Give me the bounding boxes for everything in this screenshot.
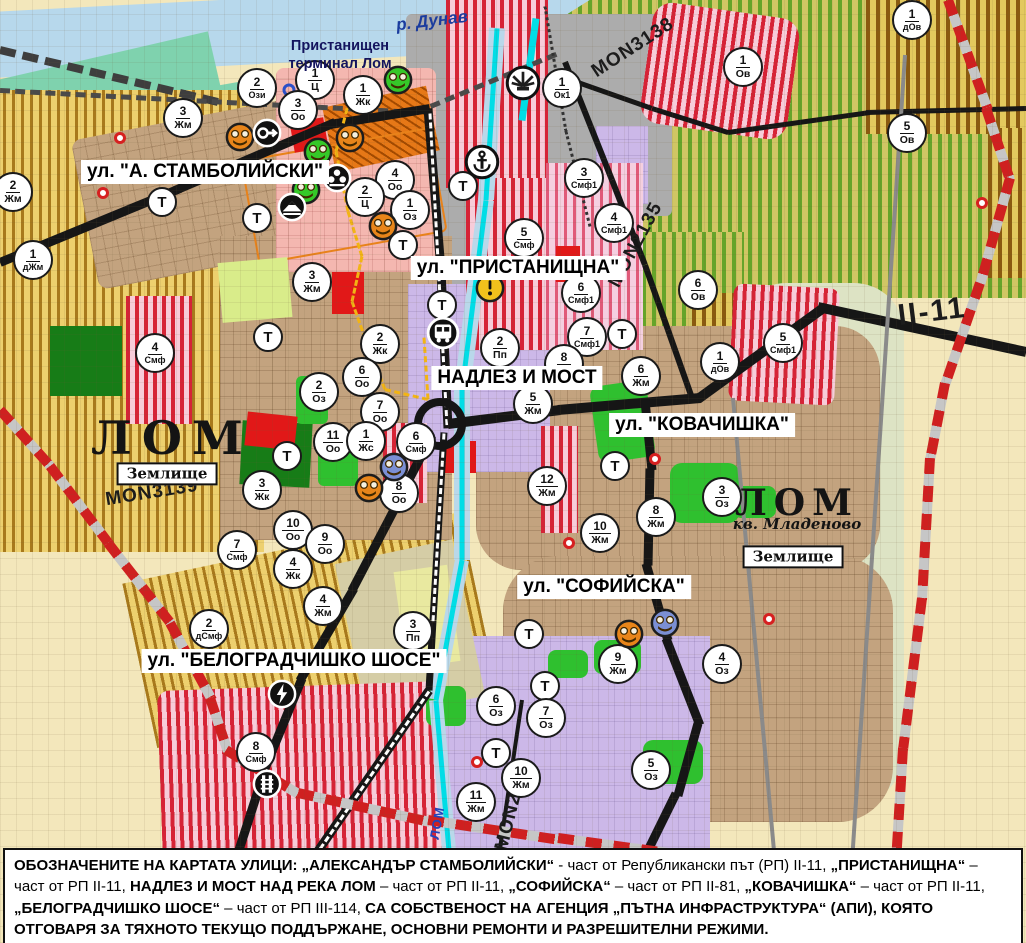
red-dot-marker <box>763 613 775 625</box>
zone-marker-number: 10 <box>282 517 303 531</box>
zone-marker-number: 5 <box>776 331 791 345</box>
zone-marker-code: дОв <box>711 364 729 374</box>
caption-bold-segment: „КОВАЧИШКА“ <box>744 878 856 895</box>
zone-marker-code: Оо <box>388 181 403 193</box>
zone-marker-2-Оз: 2Оз <box>299 372 339 412</box>
transformer-t-marker: Т <box>607 319 637 349</box>
zone-marker-number: 5 <box>900 120 915 134</box>
zone-marker-9-Жм: 9Жм <box>598 644 638 684</box>
zone-marker-5-Оз: 5Оз <box>631 750 671 790</box>
fan-icon <box>505 65 541 101</box>
zone-marker-number: 3 <box>291 97 306 111</box>
zone-marker-2-дСмф: 2дСмф <box>189 609 229 649</box>
transformer-t-marker: Т <box>600 451 630 481</box>
zone-marker-number: 6 <box>489 693 504 707</box>
zone-marker-code: Жм <box>591 534 608 546</box>
zone-marker-3-Пп: 3Пп <box>393 611 433 651</box>
zone-marker-code: Оз <box>715 665 728 677</box>
zone-marker-code: дЖм <box>23 262 44 272</box>
zone-marker-code: Жм <box>4 193 21 205</box>
street-label: ул. "БЕЛОГРАДЧИШКО ШОСЕ" <box>142 649 447 673</box>
zone-marker-8-Смф: 8Смф <box>236 732 276 772</box>
zone-marker-number: 1 <box>713 350 728 364</box>
transformer-t-marker: Т <box>253 322 283 352</box>
monument-icon-orange <box>225 122 255 152</box>
zone-marker-number: 2 <box>312 379 327 393</box>
zone-marker-1-Жк: 1Жк <box>343 75 383 115</box>
zone-marker-12-Жм: 12Жм <box>527 466 567 506</box>
zone-marker-number: 3 <box>715 484 730 498</box>
zone-marker-code: Пп <box>406 632 420 644</box>
zone-marker-number: 3 <box>255 477 270 491</box>
zemlishte-box: Землище44238 <box>117 462 218 485</box>
zone-marker-number: 1 <box>26 248 41 262</box>
zone-marker-number: 1 <box>736 54 751 68</box>
caption-bold-segment: НАДЛЕЗ И МОСТ НАД РЕКА ЛОМ <box>130 878 376 895</box>
zone-marker-number: 6 <box>355 364 370 378</box>
caption-segment: – част от РП II-11, <box>856 878 984 895</box>
zone-marker-number: 3 <box>406 618 421 632</box>
monument-icon-blue <box>650 608 680 638</box>
zone-marker-code: Смф1 <box>770 345 796 355</box>
zone-marker-1-Ок1: 1Ок1 <box>542 68 582 108</box>
zone-marker-1-дОв: 1дОв <box>700 342 740 382</box>
zone-marker-code: Смф <box>246 754 267 764</box>
zone-marker-number: 4 <box>286 556 301 570</box>
zone-marker-number: 6 <box>574 281 589 295</box>
zone-marker-code: Жк <box>286 570 301 582</box>
caption-bold-segment: ОБОЗНАЧЕНИТЕ НА КАРТАТА УЛИЦИ: „АЛЕКСАНД… <box>14 857 554 874</box>
zone-marker-11-Жм: 11Жм <box>456 782 496 822</box>
zone-marker-6-Ов: 6Ов <box>678 270 718 310</box>
city-label-lom: ЛОМ <box>91 411 253 465</box>
road-number-label: II-11 <box>896 291 968 333</box>
zone-marker-10-Жм: 10Жм <box>580 513 620 553</box>
zone-marker-code: Оз <box>489 707 502 719</box>
zone-marker-2-Пп: 2Пп <box>480 328 520 368</box>
zone-marker-1-дОв: 1дОв <box>892 0 932 40</box>
zemlishte-line1: Землище <box>753 547 834 565</box>
zone-marker-number: 1 <box>359 428 374 442</box>
caption-box: ОБОЗНАЧЕНИТЕ НА КАРТАТА УЛИЦИ: „АЛЕКСАНД… <box>3 848 1023 943</box>
monument-icon-orange <box>368 211 398 241</box>
zone-marker-code: Оз <box>644 771 657 783</box>
red-dot-marker <box>97 187 109 199</box>
zone-marker-number: 3 <box>176 105 191 119</box>
zone-marker-number: 1 <box>356 82 371 96</box>
river-danube-label: р. Дунав <box>395 7 469 36</box>
zone-marker-number: 12 <box>536 473 557 487</box>
transformer-t-marker: Т <box>147 187 177 217</box>
zone-marker-number: 8 <box>392 480 407 494</box>
zone-marker-code: Жм <box>314 607 331 619</box>
zone-marker-code: Пп <box>493 349 507 361</box>
zemlishte-line1: Землище <box>127 464 208 482</box>
zone-marker-9-Оо: 9Оо <box>305 524 345 564</box>
road-number-label: MON3138 <box>588 13 678 82</box>
zone-marker-number: 5 <box>517 226 532 240</box>
zone-marker-5-Смф1: 5Смф1 <box>763 323 803 363</box>
zone-marker-number: 10 <box>510 765 531 779</box>
zone-marker-number: 2 <box>202 617 217 631</box>
zone-marker-code: Оо <box>326 443 341 455</box>
zone-marker-code: Смф <box>227 552 248 562</box>
zone-marker-number: 11 <box>466 789 487 803</box>
monument-icon-blue <box>379 452 409 482</box>
zone-marker-4-Жк: 4Жк <box>273 549 313 589</box>
zone-marker-5-Жм: 5Жм <box>513 384 553 424</box>
red-dot-marker <box>563 537 575 549</box>
zone-marker-number: 8 <box>557 351 572 365</box>
zone-marker-8-Жм: 8Жм <box>636 497 676 537</box>
port-terminal-label: Пристанищен терминал Лом <box>288 37 391 73</box>
zone-marker-code: Жм <box>524 405 541 417</box>
zone-marker-code: Оз <box>715 498 728 510</box>
zone-marker-5-Ов: 5Ов <box>887 113 927 153</box>
zone-marker-number: 7 <box>230 538 245 552</box>
anchor-icon <box>464 144 500 180</box>
street-label: ул. "СОФИЙСКА" <box>517 575 691 599</box>
zone-marker-code: Оо <box>318 545 333 557</box>
zone-marker-number: 2 <box>250 76 265 90</box>
zone-marker-number: 8 <box>249 740 264 754</box>
zone-marker-code: Оо <box>355 378 370 390</box>
caption-text: ОБОЗНАЧЕНИТЕ НА КАРТАТА УЛИЦИ: „АЛЕКСАНД… <box>14 855 1012 940</box>
zone-marker-code: Ов <box>691 291 706 303</box>
caption-segment: – част от РП III-114, <box>220 900 365 917</box>
zemlishte-box: Землище44238 <box>743 545 844 568</box>
zone-marker-number: 6 <box>691 277 706 291</box>
caption-segment: – част от РП II-11, <box>376 878 509 895</box>
caption-bold-segment: „ПРИСТАНИЩНА“ <box>831 857 966 874</box>
zone-marker-code: Жк <box>373 345 388 357</box>
zone-marker-code: Смф <box>145 355 166 365</box>
rails-icon <box>252 769 282 799</box>
zone-marker-code: Оз <box>539 719 552 731</box>
zone-marker-number: 4 <box>715 651 730 665</box>
monument-icon-orange <box>335 123 365 153</box>
road-number-label: ЛОМ <box>427 805 448 840</box>
transformer-t-marker: Т <box>514 619 544 649</box>
zone-marker-number: 1 <box>905 8 920 22</box>
zone-marker-3-Жм: 3Жм <box>163 98 203 138</box>
zone-marker-code: Смф1 <box>574 339 600 349</box>
zone-marker-3-Оо: 3Оо <box>278 90 318 130</box>
street-label: ул. "ПРИСТАНИЩНА" <box>411 256 626 280</box>
caption-bold-segment: „БЕЛОГРАДЧИШКО ШОСЕ“ <box>14 900 220 917</box>
zone-marker-code: Жм <box>512 779 529 791</box>
zone-marker-number: 9 <box>611 651 626 665</box>
zone-marker-number: 9 <box>318 531 333 545</box>
zone-marker-3-Жм: 3Жм <box>292 262 332 302</box>
zone-marker-code: Смф1 <box>571 180 597 190</box>
map-canvas[interactable]: 2Ози1Ц1Жк3Оо3Жм1Ок12Жм1дЖм4Оо2Ц1Оз3Жм3См… <box>0 0 1026 943</box>
zone-marker-number: 1 <box>403 197 418 211</box>
zone-marker-code: Ов <box>900 134 915 146</box>
caption-segment: - част от Републикански път (РП) II-11, <box>554 857 830 874</box>
zone-marker-5-Смф: 5Смф <box>504 218 544 258</box>
lightning-icon <box>267 679 297 709</box>
zone-marker-number: 2 <box>493 335 508 349</box>
kvartal-mladenovo-label: кв. Младеново <box>733 515 862 533</box>
red-dot-marker <box>649 453 661 465</box>
zone-marker-code: Жм <box>647 518 664 530</box>
zone-marker-3-Жк: 3Жк <box>242 470 282 510</box>
zone-marker-number: 10 <box>589 520 610 534</box>
zone-marker-6-Оз: 6Оз <box>476 686 516 726</box>
zone-marker-code: Оо <box>392 494 407 506</box>
zone-marker-code: дСмф <box>196 631 223 641</box>
zone-marker-number: 2 <box>373 331 388 345</box>
transformer-t-marker: Т <box>272 441 302 471</box>
zone-marker-code: дОв <box>903 22 921 32</box>
zone-marker-code: Жм <box>609 665 626 677</box>
zone-marker-code: Жм <box>538 487 555 499</box>
red-dot-marker <box>114 132 126 144</box>
zone-marker-number: 11 <box>323 429 344 443</box>
zone-marker-number: 2 <box>358 184 373 198</box>
zone-marker-number: 3 <box>305 269 320 283</box>
label-layer: р. Дунав Пристанищен терминал Лом ЛОМ ЛО… <box>0 0 1026 943</box>
zone-marker-2-Ози: 2Ози <box>237 68 277 108</box>
bus-icon <box>426 316 460 350</box>
zone-marker-1-Ов: 1Ов <box>723 47 763 87</box>
zone-marker-code: Жм <box>303 283 320 295</box>
zone-marker-code: Оз <box>312 393 325 405</box>
transformer-t-marker: Т <box>530 671 560 701</box>
zone-marker-code: Жк <box>356 96 371 108</box>
mountain-icon <box>277 192 307 222</box>
caption-bold-segment: „СОФИЙСКА“ <box>508 878 610 895</box>
zone-marker-code: Смф1 <box>568 295 594 305</box>
zone-marker-code: Жм <box>174 119 191 131</box>
zone-marker-code: Жм <box>467 803 484 815</box>
zone-marker-number: 2 <box>6 179 21 193</box>
zone-marker-number: 4 <box>316 593 331 607</box>
transformer-t-marker: Т <box>242 203 272 233</box>
zone-marker-number: 4 <box>148 341 163 355</box>
zone-marker-4-Смф: 4Смф <box>135 333 175 373</box>
zone-marker-number: 7 <box>539 705 554 719</box>
zone-marker-4-Смф1: 4Смф1 <box>594 203 634 243</box>
zone-marker-code: Жс <box>358 442 373 454</box>
zone-marker-number: 5 <box>526 391 541 405</box>
zone-marker-code: Жк <box>255 491 270 503</box>
zone-marker-number: 8 <box>649 504 664 518</box>
zone-marker-4-Оз: 4Оз <box>702 644 742 684</box>
street-label: ул. "А. СТАМБОЛИЙСКИ" <box>81 160 329 184</box>
zone-marker-number: 4 <box>388 167 403 181</box>
monument-icon-orange <box>614 619 644 649</box>
zone-marker-4-Жм: 4Жм <box>303 586 343 626</box>
zone-marker-code: Оо <box>291 111 306 123</box>
zone-marker-number: 6 <box>634 363 649 377</box>
zone-marker-10-Жм: 10Жм <box>501 758 541 798</box>
zone-marker-code: Смф <box>514 240 535 250</box>
zone-marker-number: 1 <box>555 76 570 90</box>
zone-marker-6-Оо: 6Оо <box>342 357 382 397</box>
zone-marker-code: Ози <box>248 90 265 100</box>
street-label: НАДЛЕЗ И МОСТ <box>431 366 602 390</box>
zone-marker-7-Смф: 7Смф <box>217 530 257 570</box>
zone-marker-code: Ок1 <box>554 90 571 100</box>
zone-marker-code: Оз <box>403 211 416 223</box>
zone-marker-code: Смф1 <box>601 225 627 235</box>
caption-segment: – част от РП II-81, <box>611 878 745 895</box>
zone-marker-1-дЖм: 1дЖм <box>13 240 53 280</box>
street-label: ул. "КОВАЧИШКА" <box>609 413 795 437</box>
zone-marker-code: Оо <box>286 531 301 543</box>
zone-marker-6-Жм: 6Жм <box>621 356 661 396</box>
zone-marker-number: 7 <box>580 325 595 339</box>
zone-marker-code: Ц <box>361 198 369 210</box>
zone-marker-number: 3 <box>577 166 592 180</box>
zone-marker-code: Жм <box>632 377 649 389</box>
zone-marker-7-Оз: 7Оз <box>526 698 566 738</box>
zone-marker-code: Ов <box>736 68 751 80</box>
key-icon <box>252 118 282 148</box>
zone-marker-3-Смф1: 3Смф1 <box>564 158 604 198</box>
zone-marker-number: 4 <box>607 211 622 225</box>
red-dot-marker <box>976 197 988 209</box>
zone-marker-number: 5 <box>644 757 659 771</box>
zone-marker-number: 7 <box>373 399 388 413</box>
zone-marker-code: Ц <box>311 81 319 93</box>
zone-marker-number: 6 <box>409 430 424 444</box>
